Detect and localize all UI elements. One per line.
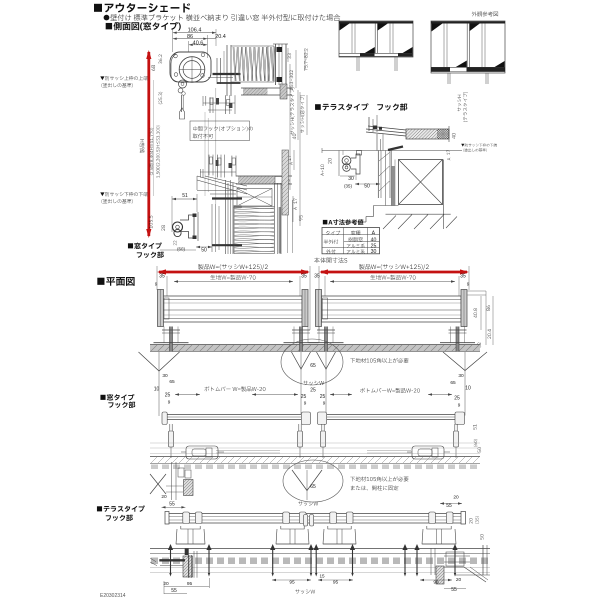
svg-text:30: 30: [162, 373, 168, 379]
svg-text:65: 65: [310, 363, 316, 369]
svg-text:20: 20: [456, 577, 462, 583]
svg-text:25: 25: [301, 394, 307, 400]
svg-text:10: 10: [465, 386, 471, 392]
svg-text:9: 9: [323, 401, 326, 406]
svg-text:86: 86: [187, 34, 193, 40]
svg-text:96: 96: [433, 580, 439, 586]
svg-text:95: 95: [289, 580, 295, 586]
svg-text:35: 35: [301, 274, 307, 280]
svg-text:55: 55: [169, 502, 175, 508]
svg-text:35: 35: [159, 274, 165, 280]
svg-text:9: 9: [304, 401, 307, 406]
svg-text:50: 50: [201, 248, 207, 254]
svg-text:30: 30: [371, 249, 377, 255]
svg-text:9: 9: [168, 400, 171, 405]
svg-text:20: 20: [453, 495, 459, 501]
svg-text:35: 35: [460, 274, 466, 280]
svg-text:30: 30: [348, 176, 354, 182]
svg-text:50: 50: [364, 184, 370, 190]
svg-text:95: 95: [333, 580, 339, 586]
svg-text:15: 15: [319, 574, 325, 579]
svg-text:(60): (60): [177, 247, 185, 252]
svg-text:(35): (35): [344, 184, 352, 189]
svg-text:51: 51: [182, 193, 188, 199]
svg-text:9: 9: [467, 282, 470, 287]
svg-text:9: 9: [458, 403, 461, 408]
svg-text:65: 65: [450, 380, 456, 386]
svg-text:A: A: [372, 231, 376, 237]
svg-text:30: 30: [458, 373, 464, 379]
svg-text:20: 20: [161, 494, 167, 500]
svg-text:40.6: 40.6: [193, 40, 204, 46]
svg-text:65: 65: [169, 379, 175, 385]
svg-text:65: 65: [310, 484, 316, 490]
svg-text:55: 55: [446, 503, 452, 509]
svg-text:20.4: 20.4: [215, 34, 226, 40]
svg-text:E20302314: E20302314: [100, 593, 126, 599]
svg-text:25: 25: [310, 388, 316, 394]
svg-text:55: 55: [451, 587, 457, 593]
svg-text:9: 9: [155, 282, 158, 287]
svg-text:10: 10: [154, 387, 160, 393]
svg-text:25: 25: [320, 394, 326, 400]
svg-text:25: 25: [165, 393, 171, 399]
svg-text:106.4: 106.4: [188, 27, 202, 33]
svg-text:95: 95: [187, 581, 193, 587]
svg-text:25: 25: [454, 396, 460, 402]
